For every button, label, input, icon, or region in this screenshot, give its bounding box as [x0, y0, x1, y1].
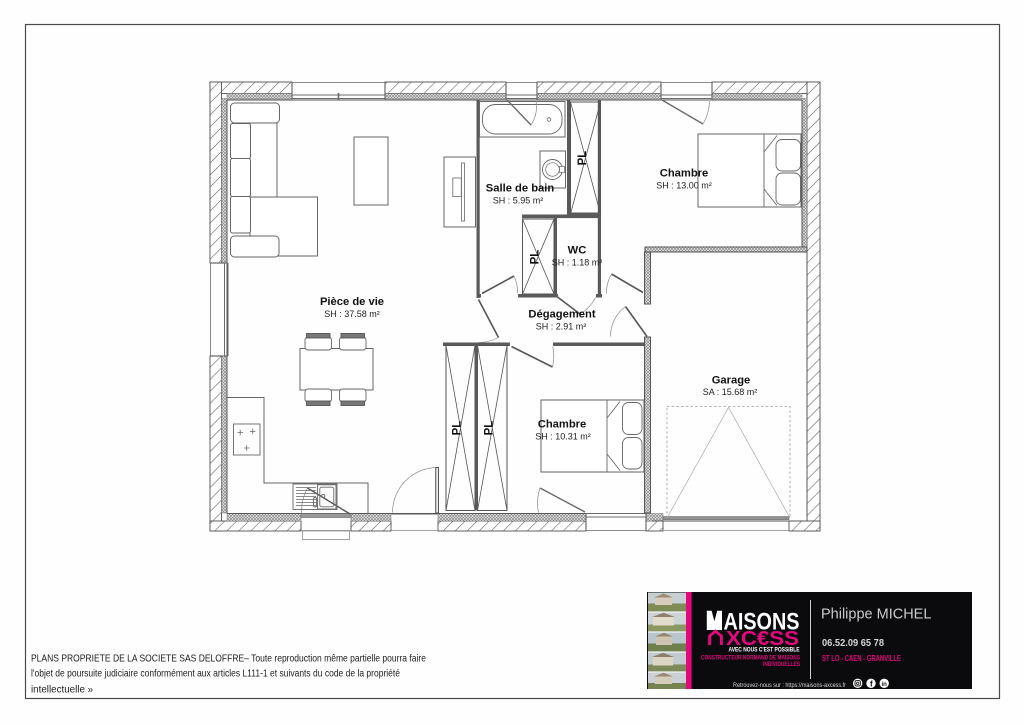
svg-text:SH : 13.00 m²: SH : 13.00 m² — [656, 181, 712, 191]
svg-text:PL: PL — [484, 421, 496, 436]
svg-text:WC: WC — [568, 245, 587, 257]
svg-text:SH : 1.18 m²: SH : 1.18 m² — [552, 258, 603, 268]
svg-text:PL: PL — [530, 250, 542, 265]
svg-text:AVEC NOUS C'EST POSSIBLE: AVEC NOUS C'EST POSSIBLE — [729, 646, 800, 653]
svg-text:Garage: Garage — [712, 375, 751, 387]
svg-text:SH : 10.31 m²: SH : 10.31 m² — [535, 432, 591, 442]
svg-text:Dégagement: Dégagement — [528, 309, 595, 321]
svg-text:SA : 15.68 m²: SA : 15.68 m² — [703, 387, 758, 397]
svg-text:Salle de bain: Salle de bain — [486, 183, 555, 195]
svg-text:intellectuelle »: intellectuelle » — [31, 685, 94, 696]
svg-text:INDIVIDUELLES: INDIVIDUELLES — [763, 662, 800, 668]
svg-text:PL: PL — [577, 151, 589, 166]
svg-text:l'objet de poursuite judiciair: l'objet de poursuite judiciaire conformé… — [31, 669, 400, 680]
svg-text:Chambre: Chambre — [660, 168, 709, 180]
svg-text:f: f — [870, 679, 873, 689]
svg-text:Pièce de vie: Pièce de vie — [320, 296, 384, 308]
svg-text:in: in — [882, 682, 888, 688]
svg-text:CONSTRUCTEUR NORMAND DE MAISON: CONSTRUCTEUR NORMAND DE MAISONS — [701, 656, 800, 662]
svg-text:SH : 5.95 m²: SH : 5.95 m² — [493, 196, 544, 206]
svg-text:Chambre: Chambre — [538, 419, 587, 431]
svg-text:Retrouvez-nous sur : https://m: Retrouvez-nous sur : https://maisons-axc… — [733, 682, 847, 689]
svg-text:PL: PL — [452, 421, 464, 436]
svg-text:Philippe MICHEL: Philippe MICHEL — [821, 607, 931, 623]
svg-text:SH : 2.91 m²: SH : 2.91 m² — [536, 322, 587, 332]
svg-text:06.52.09 65 78: 06.52.09 65 78 — [822, 638, 884, 649]
svg-text:ST LO - CAEN - GRANVILLE: ST LO - CAEN - GRANVILLE — [822, 653, 901, 663]
svg-text:PLANS PROPRIETE DE LA SOCIETE: PLANS PROPRIETE DE LA SOCIETE SAS DELOFF… — [31, 654, 426, 665]
svg-text:SH : 37.58 m²: SH : 37.58 m² — [324, 309, 380, 319]
